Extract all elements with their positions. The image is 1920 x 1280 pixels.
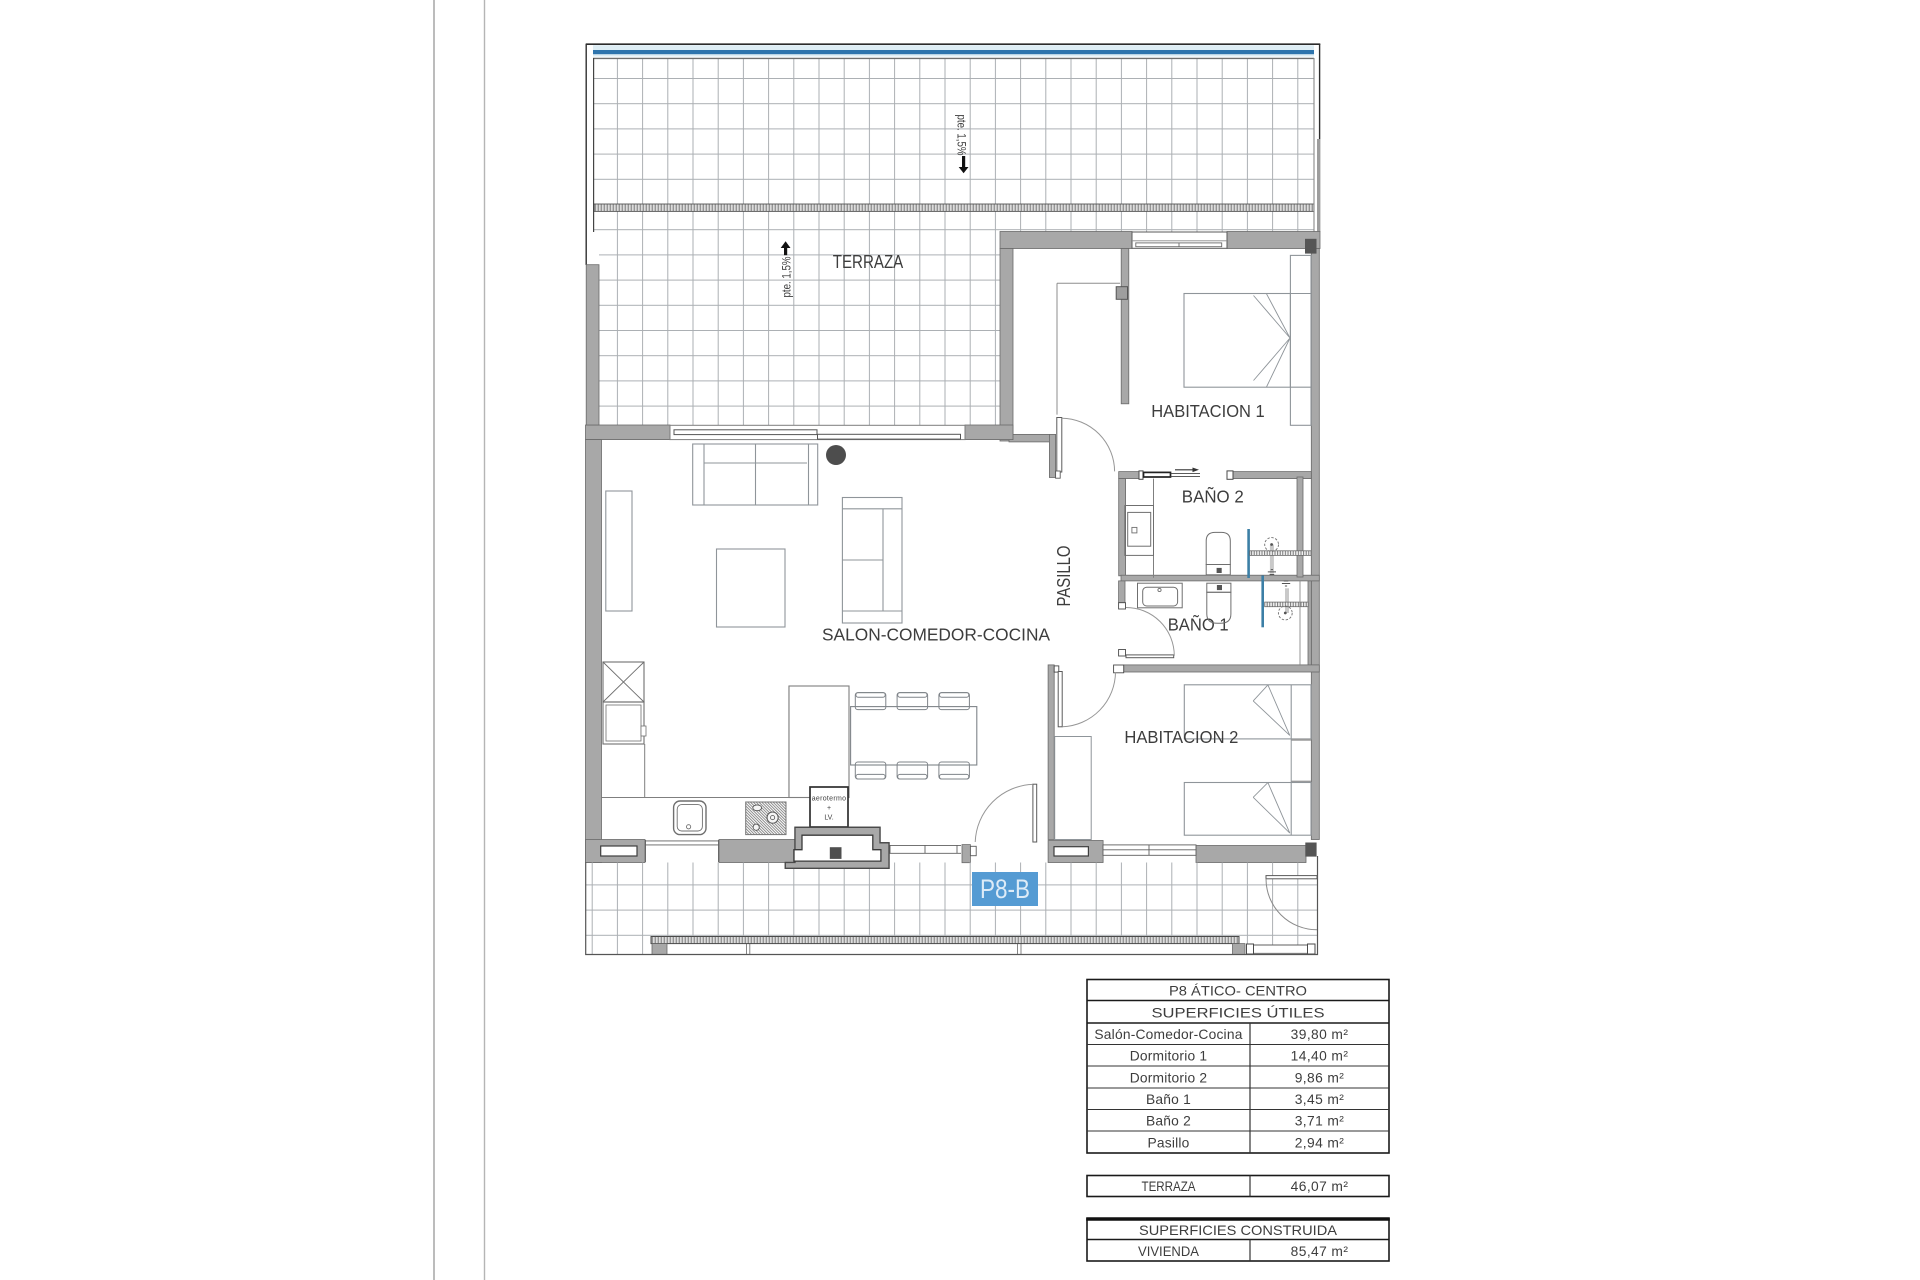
svg-text:Salón-Comedor-Cocina: Salón-Comedor-Cocina — [1094, 1027, 1242, 1042]
svg-text:HABITACION 2: HABITACION 2 — [1124, 727, 1238, 747]
svg-text:pte. 1,5%: pte. 1,5% — [780, 256, 794, 297]
svg-text:LV.: LV. — [824, 815, 833, 822]
svg-text:TERRAZA: TERRAZA — [833, 251, 904, 272]
svg-text:aerotermo: aerotermo — [812, 796, 847, 803]
svg-text:BAÑO 2: BAÑO 2 — [1182, 486, 1244, 507]
svg-text:2,94 m²: 2,94 m² — [1295, 1136, 1345, 1151]
svg-text:46,07 m²: 46,07 m² — [1291, 1179, 1349, 1194]
svg-text:P8-B: P8-B — [980, 874, 1030, 904]
svg-text:14,40 m²: 14,40 m² — [1291, 1049, 1349, 1064]
svg-text:Dormitorio 1: Dormitorio 1 — [1130, 1049, 1208, 1064]
svg-text:+: + — [827, 805, 831, 812]
svg-text:Dormitorio 2: Dormitorio 2 — [1130, 1071, 1208, 1086]
svg-text:P8 ÁTICO- CENTRO: P8 ÁTICO- CENTRO — [1169, 983, 1307, 999]
svg-text:3,71 m²: 3,71 m² — [1295, 1114, 1345, 1129]
svg-text:Pasillo: Pasillo — [1147, 1136, 1189, 1151]
svg-text:SUPERFICIES ÚTILES: SUPERFICIES ÚTILES — [1152, 1005, 1325, 1021]
svg-text:85,47 m²: 85,47 m² — [1291, 1244, 1349, 1259]
svg-text:TERRAZA: TERRAZA — [1142, 1179, 1197, 1194]
svg-text:PASILLO: PASILLO — [1054, 546, 1074, 607]
svg-text:HABITACION 1: HABITACION 1 — [1151, 401, 1265, 421]
svg-text:9,86 m²: 9,86 m² — [1295, 1071, 1345, 1086]
svg-text:pte. 1,5%: pte. 1,5% — [955, 115, 969, 156]
svg-text:VIVIENDA: VIVIENDA — [1138, 1244, 1200, 1259]
svg-text:SALON-COMEDOR-COCINA: SALON-COMEDOR-COCINA — [822, 625, 1050, 645]
svg-text:BAÑO 1: BAÑO 1 — [1168, 614, 1229, 635]
svg-text:SUPERFICIES CONSTRUIDA: SUPERFICIES CONSTRUIDA — [1139, 1223, 1338, 1238]
svg-text:39,80 m²: 39,80 m² — [1291, 1027, 1349, 1042]
svg-text:Baño 2: Baño 2 — [1146, 1114, 1191, 1129]
svg-text:3,45 m²: 3,45 m² — [1295, 1092, 1345, 1107]
svg-text:Baño 1: Baño 1 — [1146, 1092, 1191, 1107]
